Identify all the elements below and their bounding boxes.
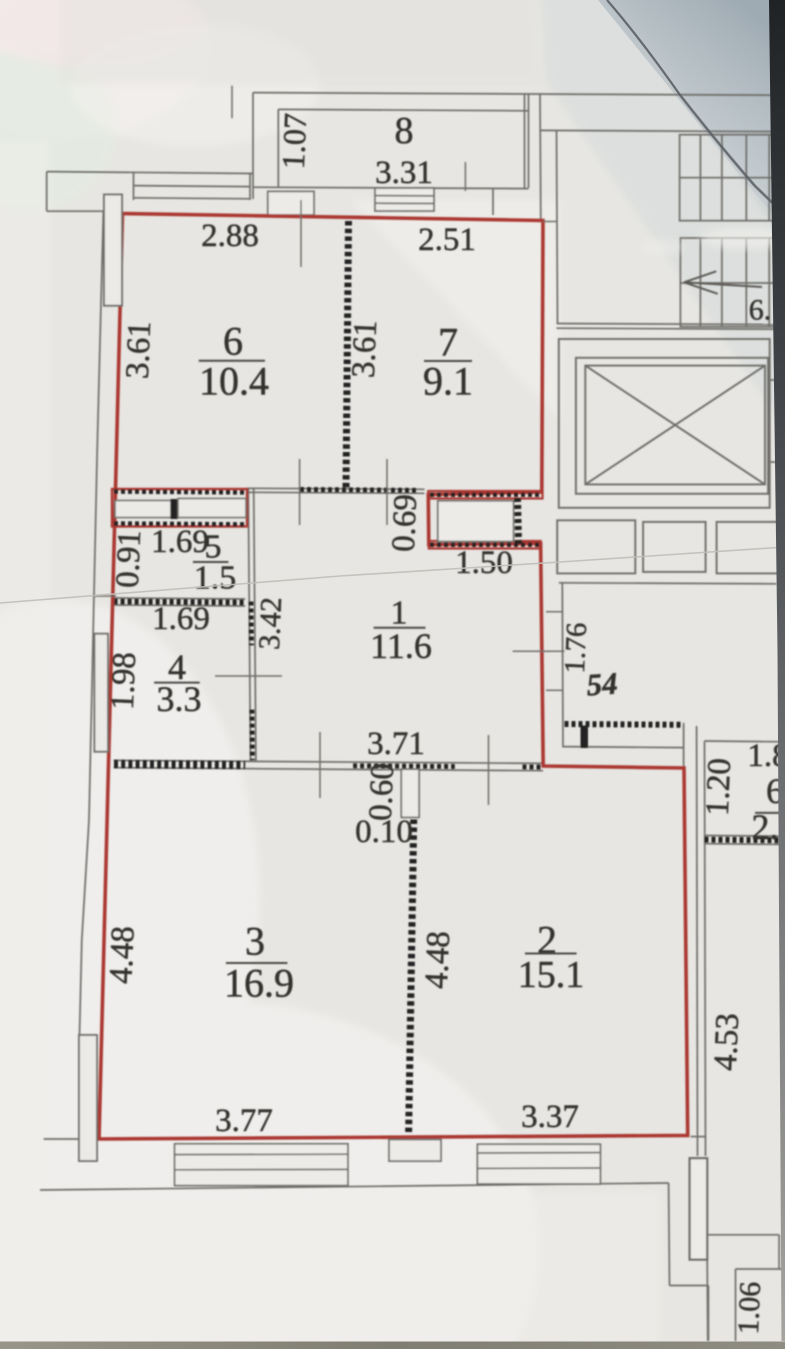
svg-text:10.4: 10.4 <box>199 359 269 404</box>
svg-text:0.91: 0.91 <box>110 529 148 588</box>
svg-text:54: 54 <box>585 665 618 702</box>
svg-text:6: 6 <box>223 319 243 364</box>
svg-text:1.20: 1.20 <box>700 757 738 816</box>
svg-text:1.69: 1.69 <box>152 601 210 637</box>
svg-text:1.69: 1.69 <box>151 524 209 560</box>
svg-text:8: 8 <box>395 110 414 152</box>
svg-text:1.50: 1.50 <box>455 545 513 581</box>
svg-text:3.61: 3.61 <box>346 319 384 378</box>
svg-text:2.88: 2.88 <box>201 218 259 254</box>
svg-text:3.71: 3.71 <box>367 726 425 762</box>
svg-text:1.07: 1.07 <box>275 112 313 170</box>
svg-text:3: 3 <box>245 919 265 964</box>
svg-text:11.6: 11.6 <box>370 626 432 666</box>
svg-text:4.53: 4.53 <box>708 1012 746 1071</box>
svg-text:4.48: 4.48 <box>419 930 457 989</box>
svg-text:0.60: 0.60 <box>363 762 401 821</box>
svg-text:0.10: 0.10 <box>355 814 413 850</box>
svg-text:1.98: 1.98 <box>105 651 143 710</box>
svg-text:4.48: 4.48 <box>103 925 141 984</box>
svg-text:1.06: 1.06 <box>732 1281 767 1335</box>
svg-text:3.61: 3.61 <box>120 320 158 379</box>
svg-text:6.: 6. <box>749 294 772 327</box>
svg-text:3.77: 3.77 <box>215 1103 273 1139</box>
svg-text:0.69: 0.69 <box>386 493 424 552</box>
svg-text:1.5: 1.5 <box>194 560 237 597</box>
svg-text:3.31: 3.31 <box>375 155 433 191</box>
svg-text:3.3: 3.3 <box>157 679 202 719</box>
svg-text:15.1: 15.1 <box>518 954 585 996</box>
svg-text:3.42: 3.42 <box>253 597 288 651</box>
svg-text:16.9: 16.9 <box>224 961 294 1006</box>
svg-text:2.51: 2.51 <box>418 222 476 258</box>
svg-text:9.1: 9.1 <box>423 359 473 404</box>
svg-text:3.37: 3.37 <box>521 1099 579 1135</box>
svg-text:1.76: 1.76 <box>559 622 593 674</box>
